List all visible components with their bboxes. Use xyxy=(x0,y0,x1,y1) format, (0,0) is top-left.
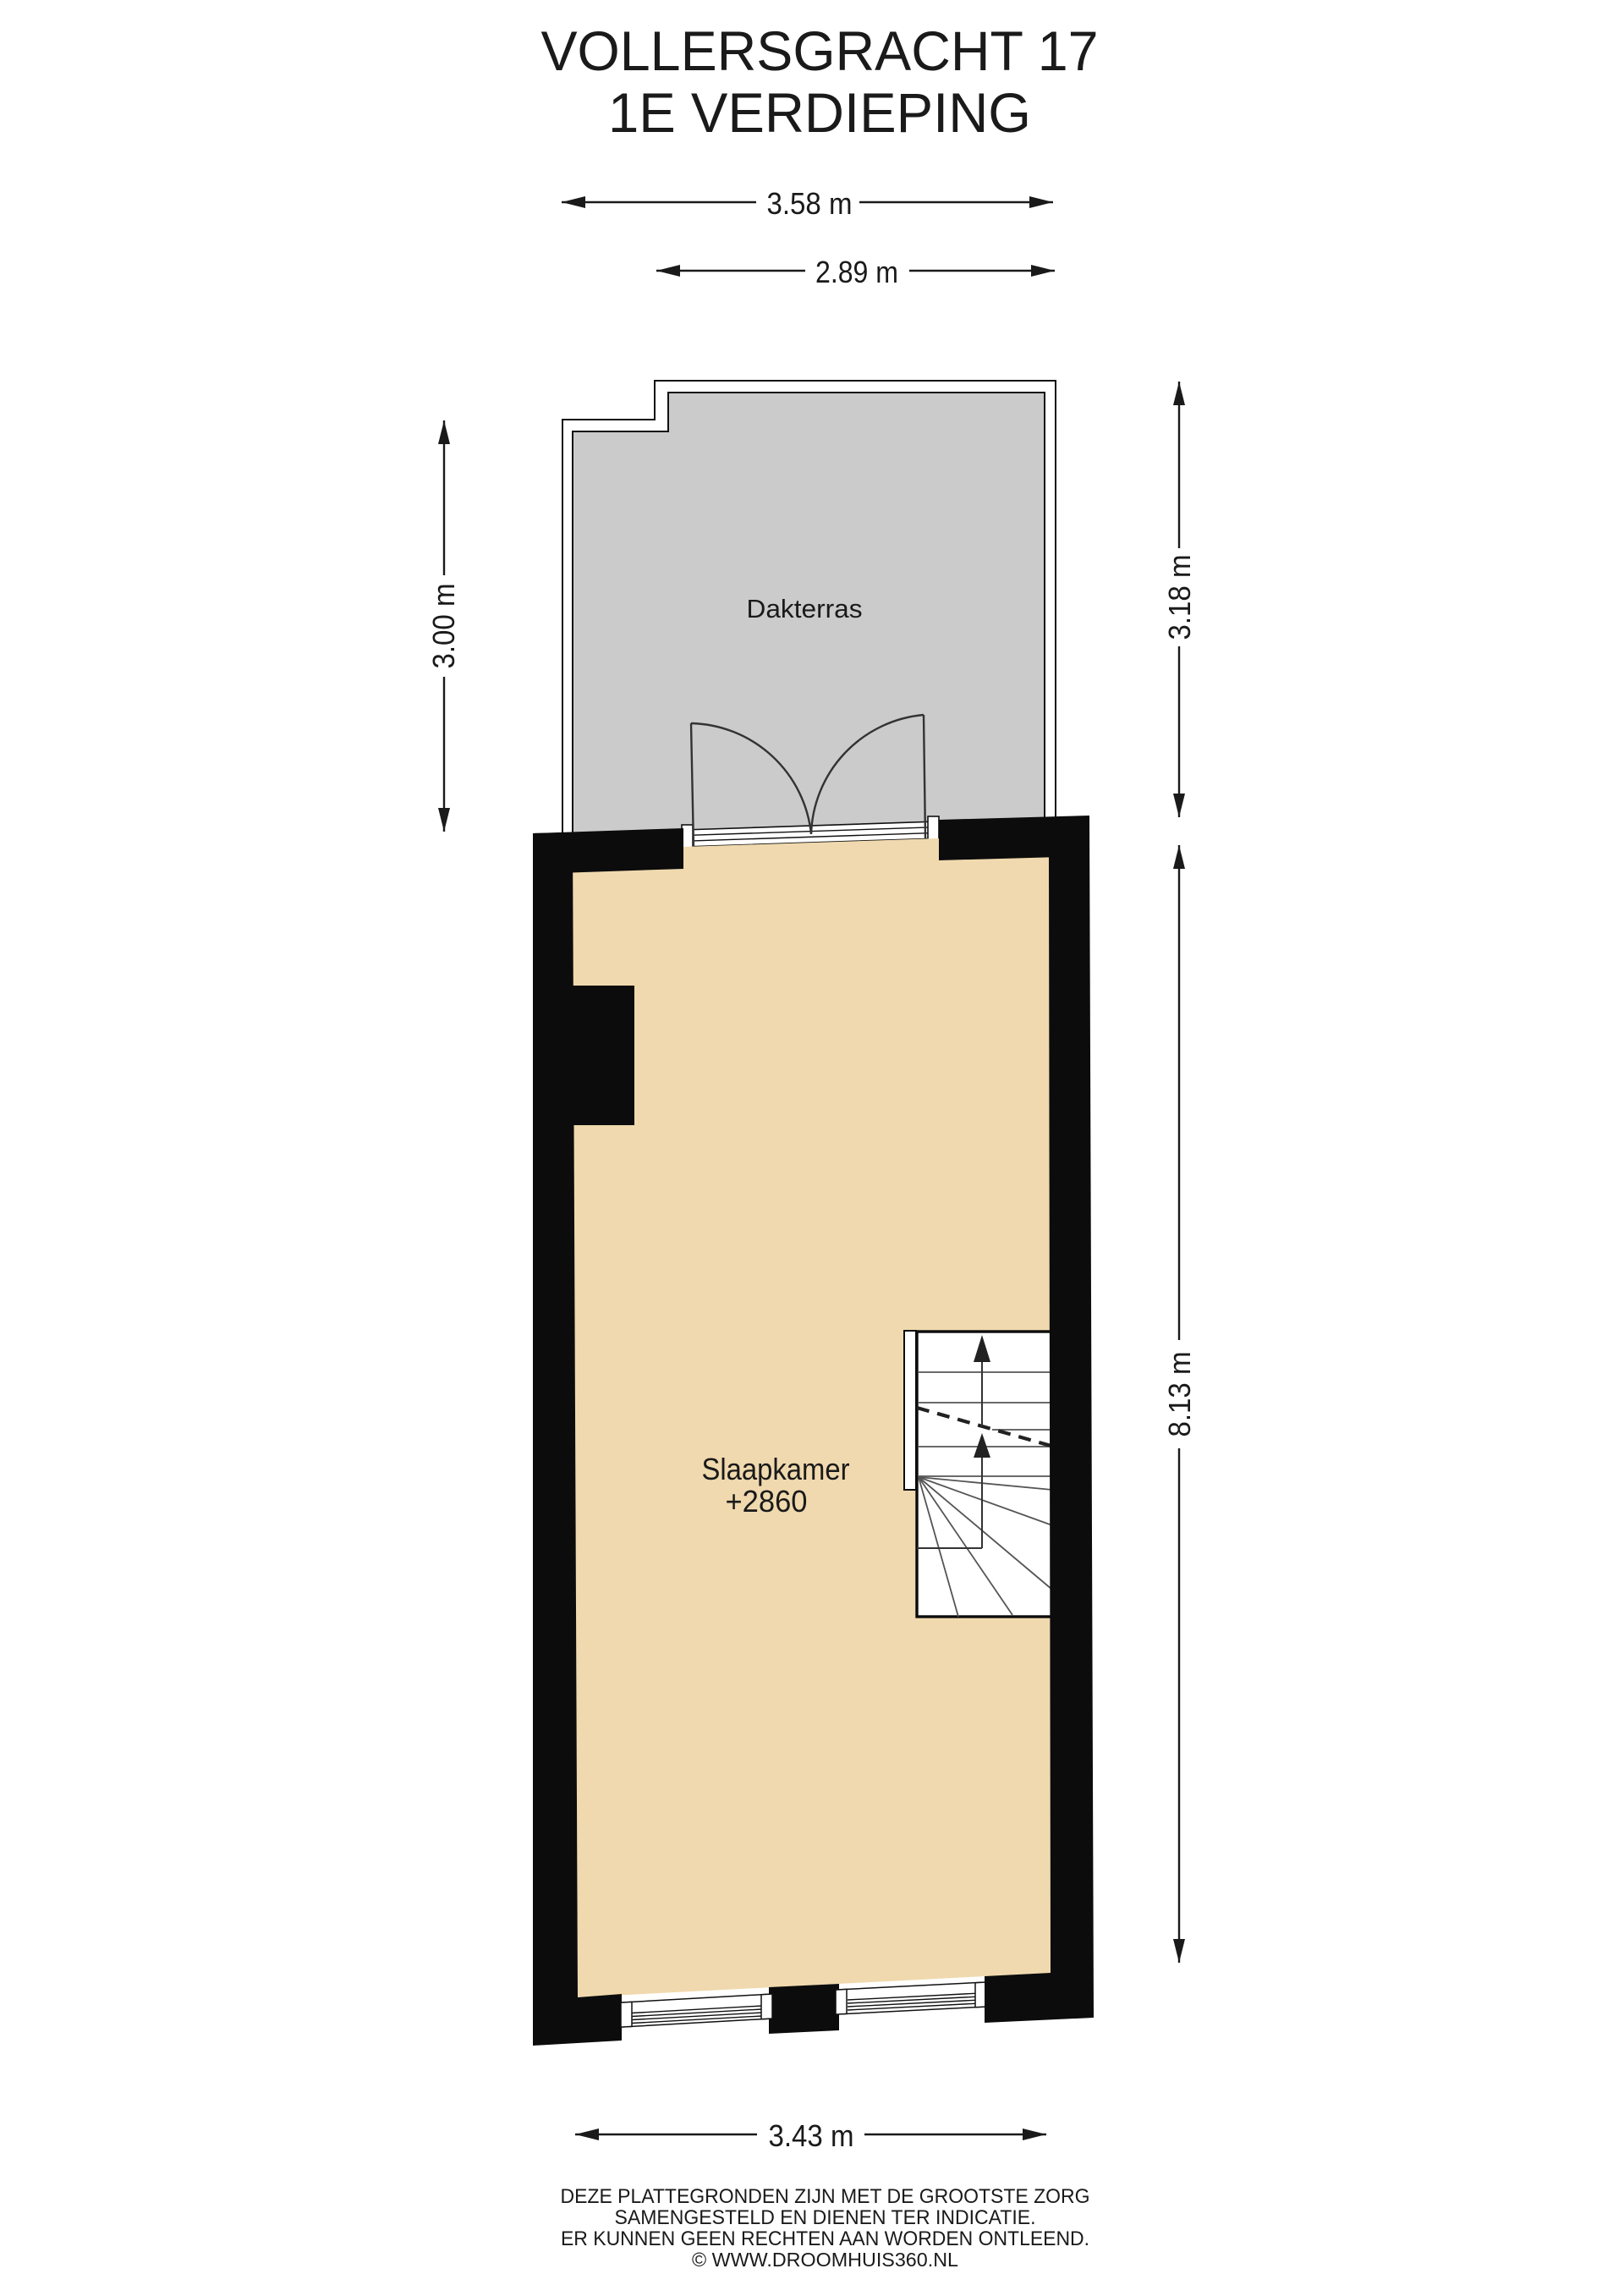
svg-text:Slaapkamer: Slaapkamer xyxy=(702,1452,850,1486)
svg-text:ER KUNNEN GEEN RECHTEN AAN WOR: ER KUNNEN GEEN RECHTEN AAN WORDEN ONTLEE… xyxy=(561,2227,1089,2250)
svg-text:© WWW.DROOMHUIS360.NL: © WWW.DROOMHUIS360.NL xyxy=(692,2249,958,2271)
svg-text:3.43 m: 3.43 m xyxy=(769,2118,854,2153)
svg-text:3.58 m: 3.58 m xyxy=(767,186,853,221)
svg-text:3.00 m: 3.00 m xyxy=(426,584,461,669)
svg-text:SAMENGESTELD EN DIENEN TER IND: SAMENGESTELD EN DIENEN TER INDICATIE. xyxy=(615,2206,1036,2229)
svg-text:3.18 m: 3.18 m xyxy=(1162,555,1197,640)
svg-text:+2860: +2860 xyxy=(726,1484,808,1519)
svg-text:VOLLERSGRACHT 17: VOLLERSGRACHT 17 xyxy=(541,20,1099,82)
svg-text:2.89 m: 2.89 m xyxy=(815,255,898,289)
svg-text:Dakterras: Dakterras xyxy=(747,594,863,623)
svg-text:DEZE PLATTEGRONDEN ZIJN MET DE: DEZE PLATTEGRONDEN ZIJN MET DE GROOTSTE … xyxy=(561,2185,1090,2208)
svg-text:8.13 m: 8.13 m xyxy=(1162,1352,1197,1437)
svg-text:1E VERDIEPING: 1E VERDIEPING xyxy=(608,82,1031,144)
